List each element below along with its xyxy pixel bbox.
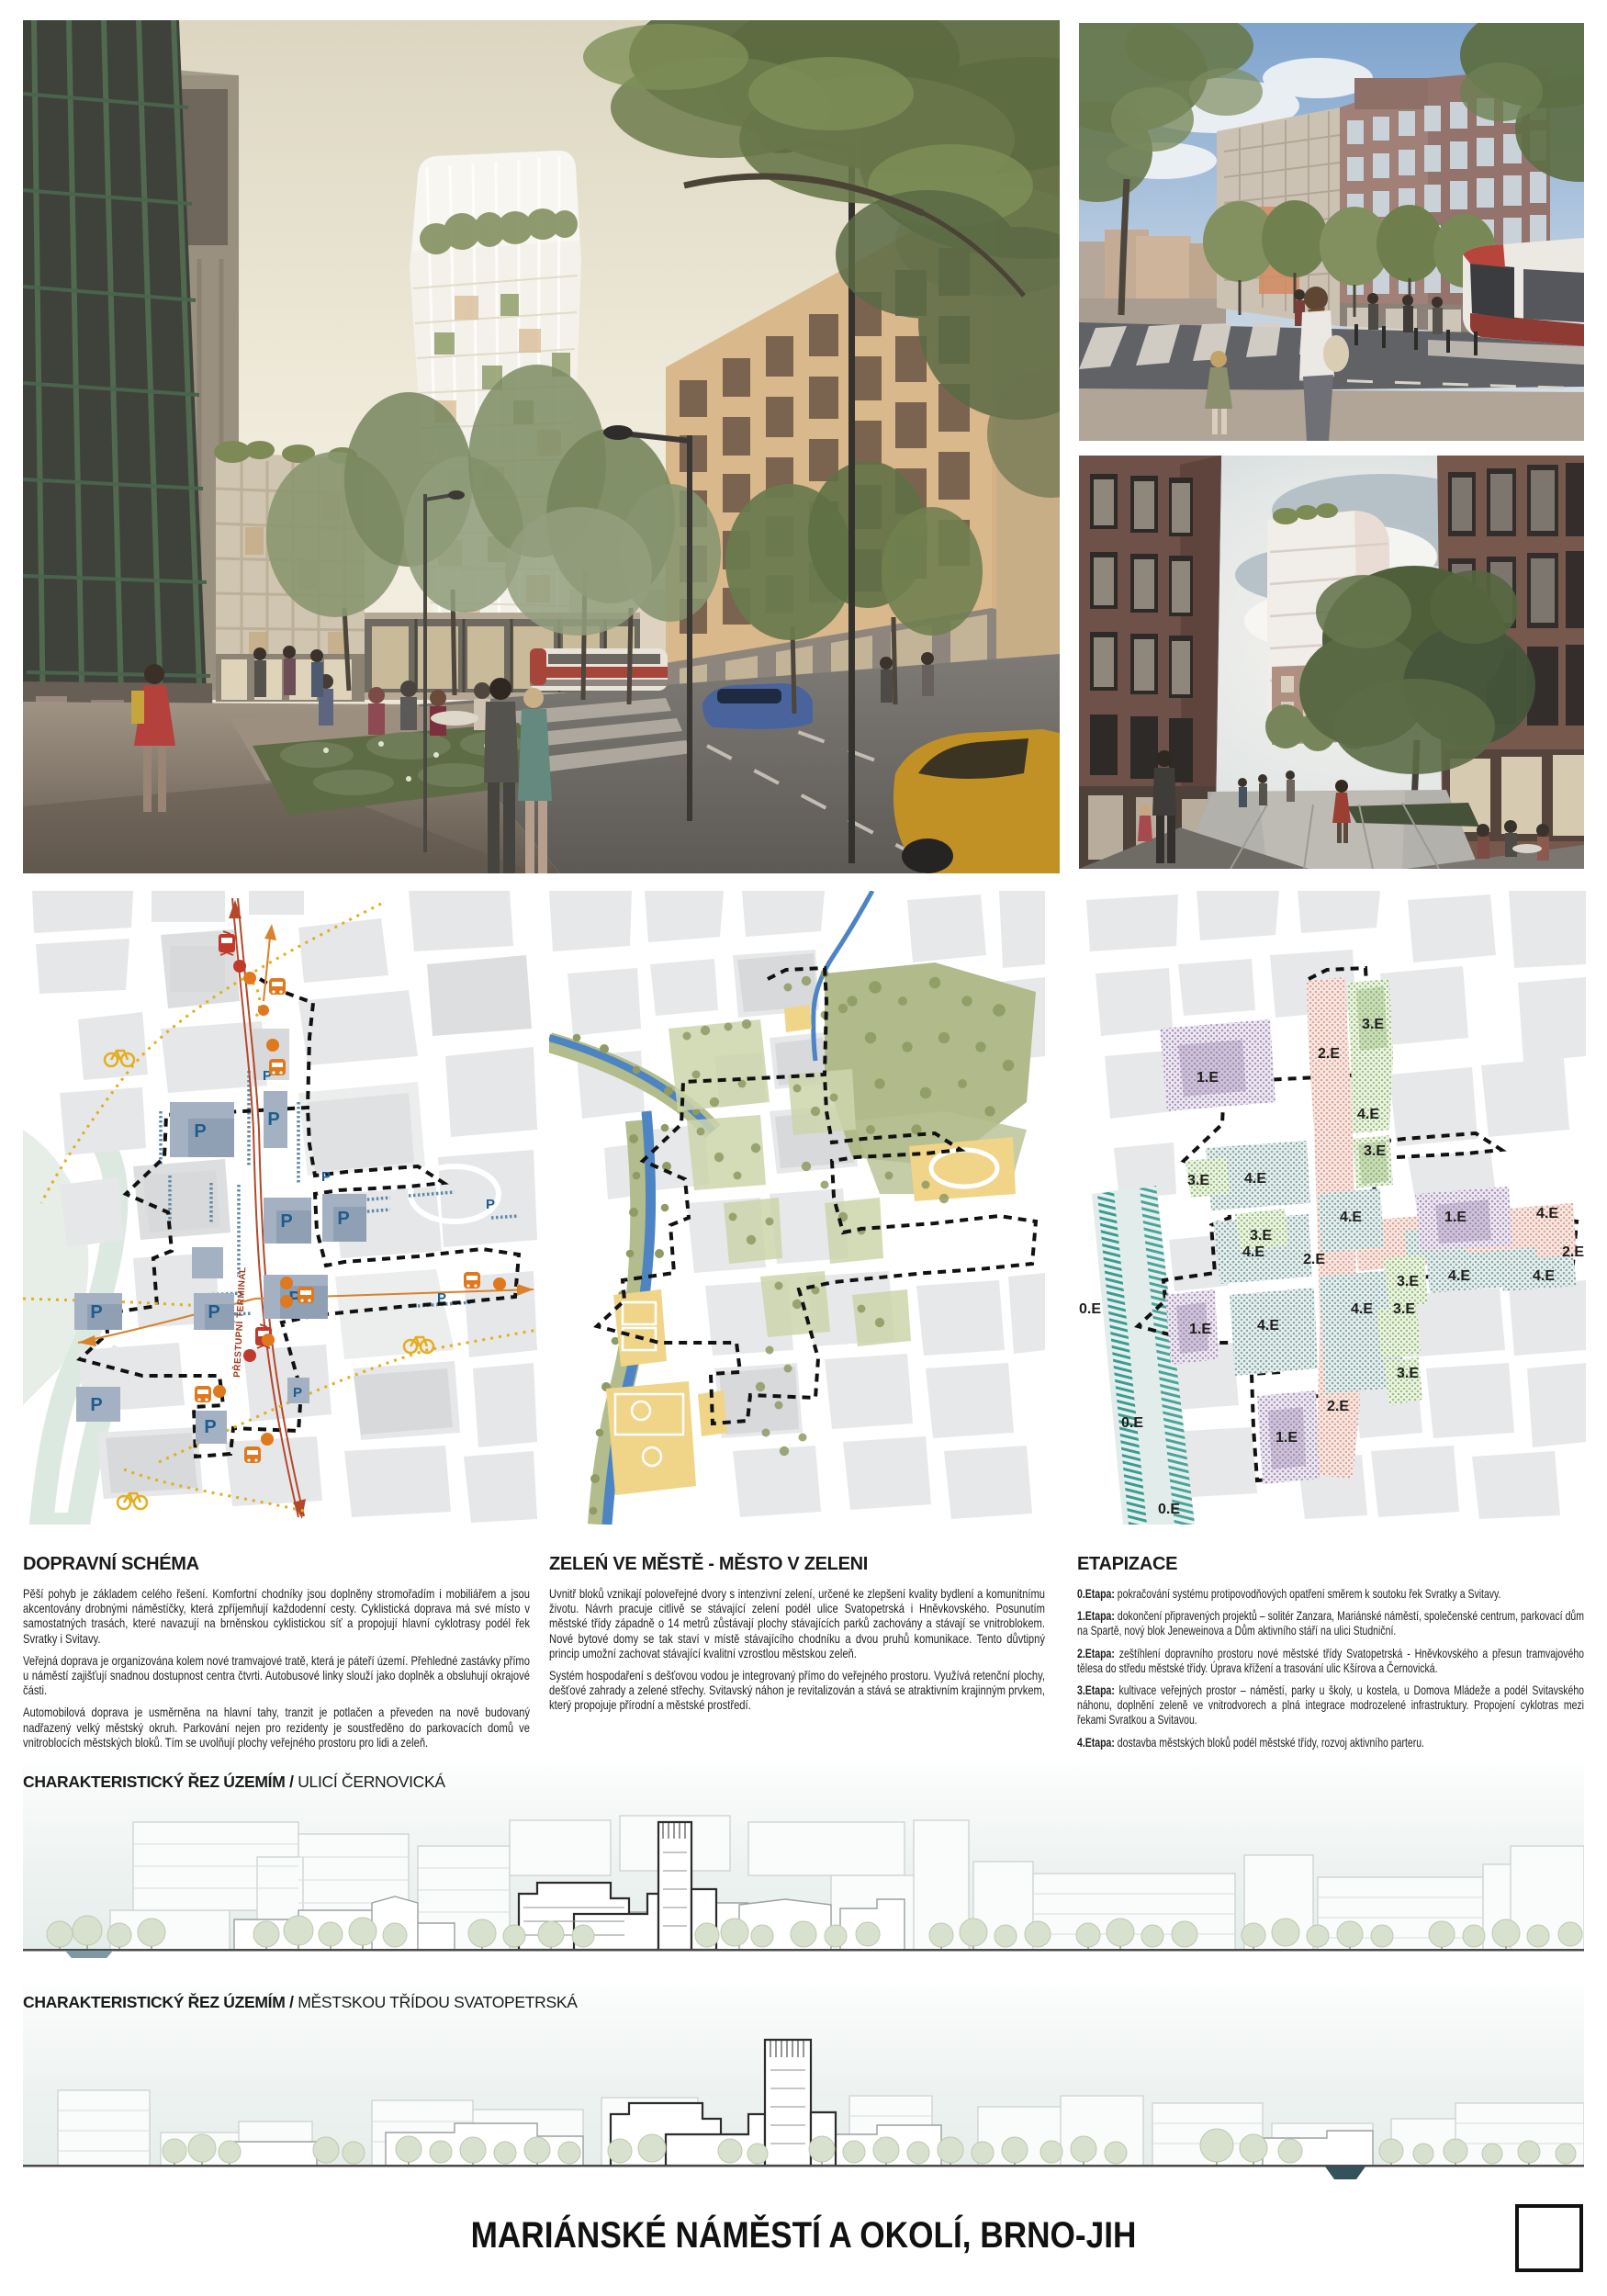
svg-text:3.E: 3.E (1250, 1228, 1272, 1244)
svg-text:P: P (437, 1290, 446, 1306)
svg-text:2.E: 2.E (1303, 1252, 1325, 1267)
svg-text:2.E: 2.E (1562, 1244, 1584, 1260)
svg-text:4.E: 4.E (1357, 1107, 1379, 1122)
svg-text:2.E: 2.E (1327, 1399, 1349, 1414)
svg-text:1.E: 1.E (1444, 1210, 1467, 1225)
svg-text:4.E: 4.E (1536, 1206, 1558, 1221)
svg-text:4.E: 4.E (1533, 1268, 1555, 1284)
svg-text:1.E: 1.E (1197, 1070, 1219, 1086)
svg-text:P: P (337, 1209, 349, 1229)
svg-text:3.E: 3.E (1364, 1143, 1386, 1159)
svg-text:3.E: 3.E (1362, 1017, 1384, 1032)
svg-text:P: P (321, 1169, 331, 1185)
svg-text:P: P (208, 1302, 219, 1322)
svg-text:4.E: 4.E (1351, 1301, 1373, 1317)
svg-text:2.E: 2.E (1318, 1046, 1340, 1062)
svg-text:P: P (204, 1417, 216, 1437)
svg-text:P: P (90, 1302, 102, 1322)
svg-text:0.E: 0.E (1079, 1301, 1101, 1317)
svg-text:P: P (280, 1211, 292, 1232)
svg-text:4.E: 4.E (1448, 1268, 1470, 1284)
svg-text:1.E: 1.E (1275, 1430, 1298, 1446)
svg-text:P: P (293, 1385, 302, 1401)
svg-text:1.E: 1.E (1189, 1322, 1211, 1337)
svg-text:4.E: 4.E (1242, 1244, 1264, 1260)
svg-text:3.E: 3.E (1397, 1274, 1419, 1289)
svg-text:P: P (90, 1395, 102, 1415)
svg-text:P: P (486, 1197, 495, 1212)
svg-text:0.E: 0.E (1121, 1415, 1143, 1431)
svg-text:4.E: 4.E (1340, 1210, 1362, 1225)
svg-text:P: P (194, 1121, 206, 1142)
svg-text:P: P (267, 1109, 279, 1130)
svg-text:4.E: 4.E (1257, 1318, 1279, 1334)
svg-text:3.E: 3.E (1397, 1366, 1419, 1381)
svg-text:0.E: 0.E (1158, 1502, 1180, 1517)
svg-text:3.E: 3.E (1393, 1301, 1415, 1317)
svg-text:4.E: 4.E (1244, 1171, 1266, 1187)
svg-text:3.E: 3.E (1187, 1173, 1209, 1188)
